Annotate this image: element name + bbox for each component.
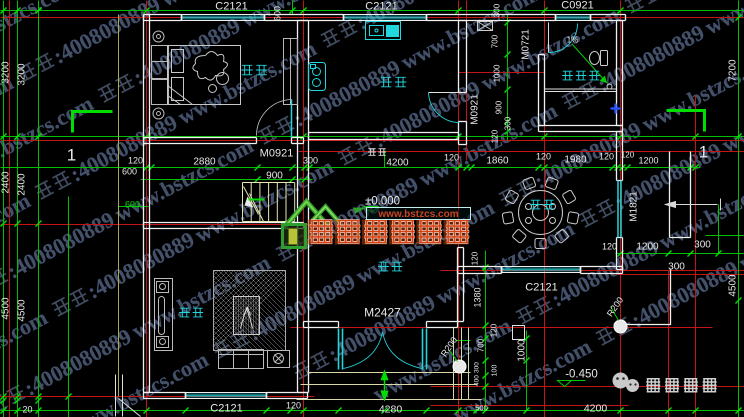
svg-text:4280: 4280 <box>379 404 403 416</box>
svg-text:120: 120 <box>602 242 617 252</box>
svg-text:4200: 4200 <box>584 403 608 415</box>
svg-text:20: 20 <box>22 405 32 415</box>
svg-text:300: 300 <box>493 3 502 17</box>
svg-text:4500: 4500 <box>728 274 739 297</box>
svg-text:600: 600 <box>122 167 137 177</box>
svg-text:1: 1 <box>67 146 76 165</box>
svg-text:3200: 3200 <box>1 61 12 84</box>
svg-text:3200: 3200 <box>17 63 28 86</box>
svg-text:1980: 1980 <box>564 155 587 166</box>
svg-text:-0.450: -0.450 <box>565 369 598 381</box>
svg-text:100: 100 <box>492 365 499 377</box>
svg-text:C2121: C2121 <box>365 1 397 13</box>
svg-text:±0.000: ±0.000 <box>365 196 400 208</box>
svg-text:C0921: C0921 <box>561 0 593 12</box>
svg-text:500: 500 <box>475 404 488 413</box>
svg-text:120: 120 <box>471 251 480 265</box>
svg-text:M1821: M1821 <box>629 191 640 222</box>
svg-text:1: 1 <box>699 143 708 162</box>
svg-text:1200: 1200 <box>636 242 659 253</box>
svg-text:C2121: C2121 <box>215 1 247 13</box>
svg-text:120: 120 <box>444 153 459 163</box>
svg-text:4500: 4500 <box>17 299 28 322</box>
svg-text:700: 700 <box>491 34 500 48</box>
svg-text:M2427: M2427 <box>364 306 401 320</box>
svg-text:900: 900 <box>266 171 283 182</box>
svg-text:2880: 2880 <box>193 157 216 168</box>
svg-text:120: 120 <box>599 152 614 162</box>
svg-text:1000: 1000 <box>517 339 528 362</box>
svg-text:300: 300 <box>694 240 711 251</box>
svg-text:2400: 2400 <box>17 173 28 196</box>
svg-text:1860: 1860 <box>486 156 509 167</box>
svg-text:120: 120 <box>128 156 143 166</box>
svg-text:900: 900 <box>495 100 504 114</box>
svg-text:1380: 1380 <box>473 287 483 307</box>
svg-text:700: 700 <box>477 338 486 352</box>
svg-text:120: 120 <box>286 401 301 411</box>
svg-text:120: 120 <box>621 151 635 160</box>
svg-text:600: 600 <box>273 6 283 21</box>
svg-text:2400: 2400 <box>1 171 12 194</box>
svg-text:4500: 4500 <box>1 297 12 320</box>
svg-text:300: 300 <box>504 116 513 130</box>
svg-text:M0921: M0921 <box>260 148 294 160</box>
svg-text:600: 600 <box>125 200 140 210</box>
svg-text:4200: 4200 <box>386 158 409 169</box>
svg-text:1200: 1200 <box>638 156 658 166</box>
svg-text:400: 400 <box>474 375 481 386</box>
svg-text:300: 300 <box>668 262 685 273</box>
svg-text:1%: 1% <box>567 36 579 45</box>
svg-text:7200: 7200 <box>728 59 739 82</box>
svg-text:300: 300 <box>303 156 318 166</box>
svg-text:M0921: M0921 <box>470 94 481 125</box>
svg-text:C2121: C2121 <box>210 403 242 415</box>
svg-text:www.bstzcs.com: www.bstzcs.com <box>377 209 458 220</box>
svg-text:C2121: C2121 <box>525 282 557 294</box>
svg-text:120: 120 <box>490 323 499 337</box>
svg-text:120: 120 <box>536 152 551 162</box>
svg-text:300: 300 <box>474 362 481 373</box>
svg-text:M0721: M0721 <box>521 29 532 60</box>
svg-text:120: 120 <box>491 129 500 143</box>
svg-text:1000: 1000 <box>493 64 502 82</box>
